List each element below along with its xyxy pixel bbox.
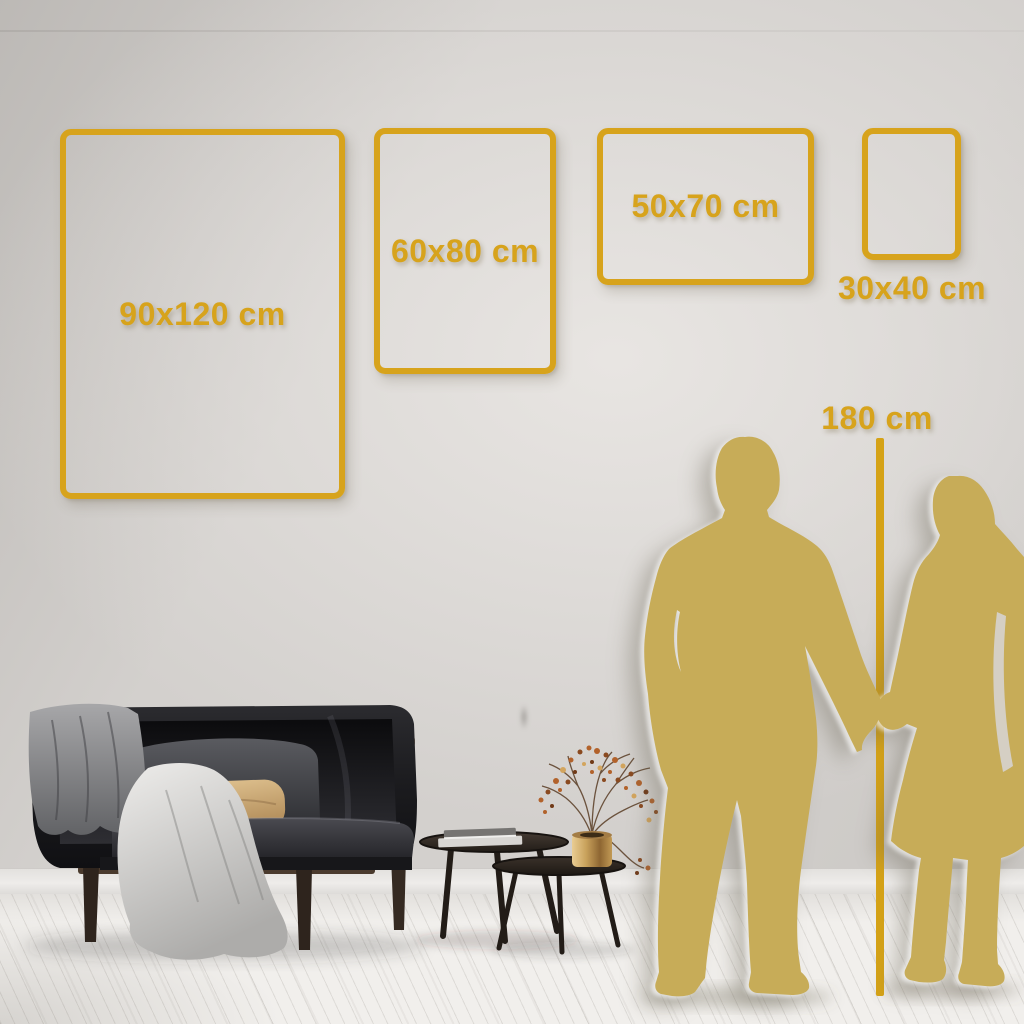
scene-art [0, 0, 1024, 1024]
dried-berry-plant [539, 746, 659, 876]
couple-silhouette [644, 437, 1024, 997]
vase-opening [580, 833, 604, 838]
sofa [29, 704, 417, 960]
room-scene: 90x120 cm 60x80 cm 50x70 cm 30x40 cm 180… [0, 0, 1024, 1024]
frame-30x40-label: 30x40 cm [832, 270, 992, 307]
sofa-leg [83, 866, 99, 942]
book-stack [438, 828, 523, 848]
height-reference-label: 180 cm [807, 400, 947, 437]
man-silhouette [644, 437, 881, 997]
